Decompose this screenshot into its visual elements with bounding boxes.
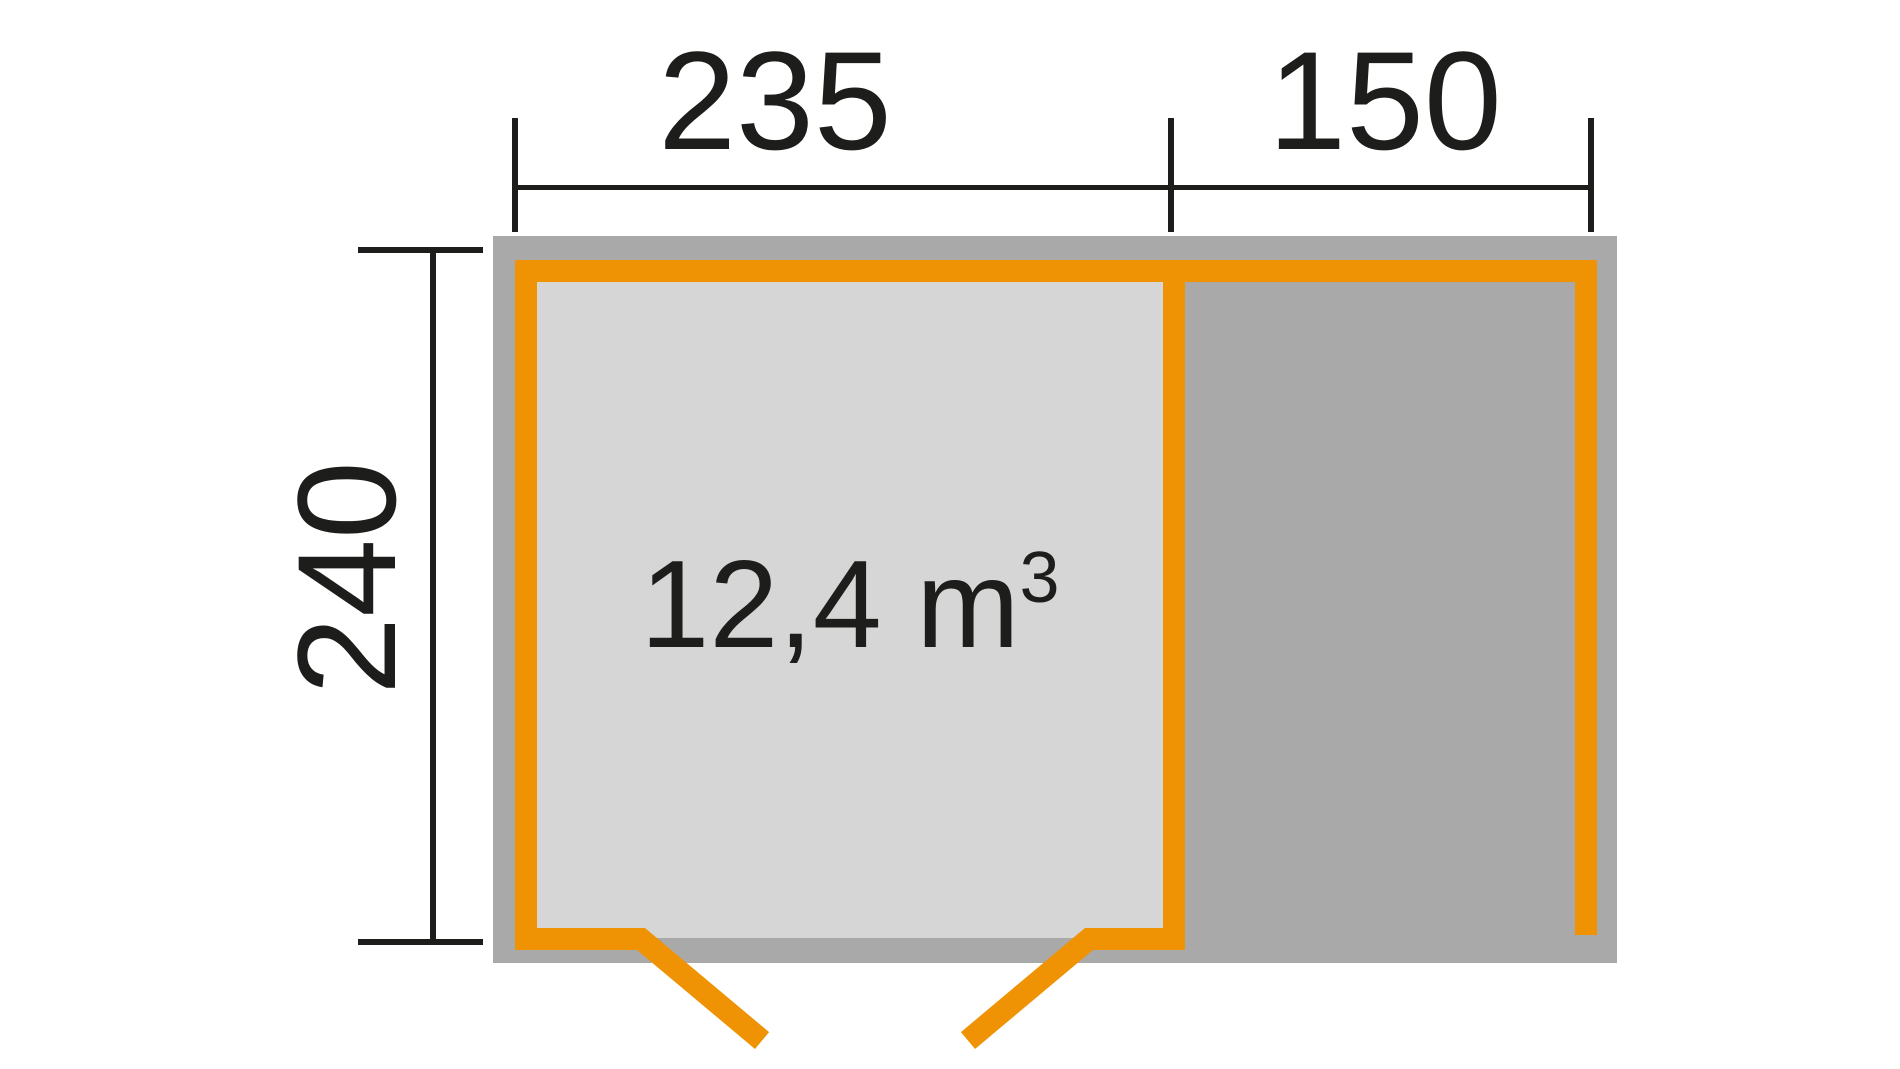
wall-bottom-left bbox=[515, 928, 645, 950]
floor-plan-canvas: 235 150 240 12,4 m3 bbox=[0, 0, 1900, 1069]
volume-value: 12,4 m bbox=[640, 536, 1019, 674]
volume-label-container: 12,4 m3 bbox=[537, 282, 1163, 928]
dimension-line-left bbox=[430, 250, 436, 942]
volume-label: 12,4 m3 bbox=[640, 543, 1059, 667]
width-main-label: 235 bbox=[450, 31, 1100, 171]
dimension-tick-left-bottom bbox=[358, 939, 483, 945]
width-annex-label: 150 bbox=[1060, 31, 1710, 171]
depth-label: 240 bbox=[277, 461, 417, 695]
wall-annex-right bbox=[1575, 260, 1597, 935]
volume-exponent: 3 bbox=[1020, 538, 1060, 618]
wall-left bbox=[515, 260, 537, 950]
door-threshold bbox=[645, 928, 1085, 938]
wall-top bbox=[515, 260, 1597, 282]
wall-bottom-right bbox=[1085, 928, 1185, 950]
wall-partition bbox=[1163, 260, 1185, 950]
dimension-line-top bbox=[515, 185, 1591, 190]
annex-room-floor bbox=[1185, 282, 1575, 963]
dimension-tick-left-top bbox=[358, 247, 483, 253]
